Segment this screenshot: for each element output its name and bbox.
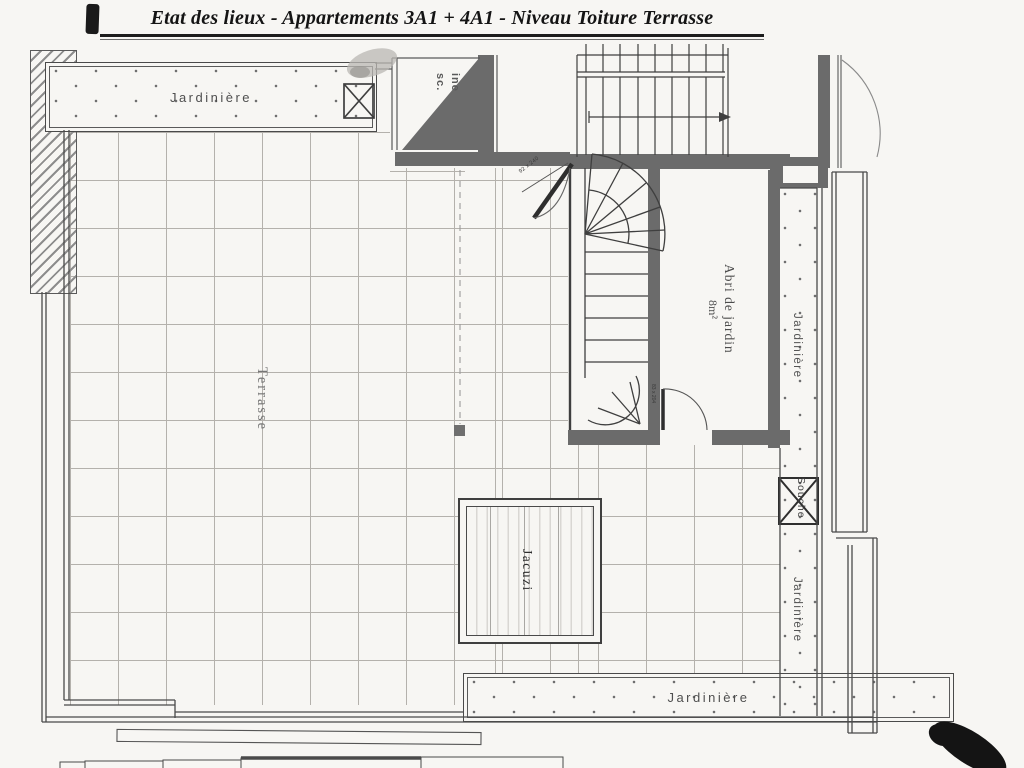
shed-door-swing-arc	[663, 389, 707, 430]
wall-shed-right	[768, 170, 780, 448]
external-stair	[577, 44, 728, 157]
scan-smudge-dark	[350, 66, 370, 78]
planter-post-box	[344, 84, 374, 118]
wall-right-top	[818, 55, 830, 168]
wall-notch	[783, 166, 818, 183]
planter-right-lower-label: Jardinière	[787, 560, 803, 660]
planter-right-upper-label: Jardinière	[787, 296, 803, 396]
external-stair-treads	[586, 77, 723, 155]
shed-label: Abri de jardin	[721, 234, 737, 384]
shaft-label-block: ine sc.	[428, 44, 462, 120]
plan-linework	[0, 0, 1024, 768]
shaft-label-line2: sc.	[432, 44, 447, 120]
landing-door-arc	[842, 60, 880, 157]
wall-top-middle	[395, 152, 570, 166]
separation-marker	[454, 425, 465, 436]
flue-label: Souche	[789, 458, 807, 538]
terrace-label: Terrasse	[250, 358, 270, 440]
stair-door	[522, 163, 572, 218]
bottom-outer-band	[117, 729, 481, 744]
bottom-partial-row	[60, 757, 563, 768]
wall-shaft-right	[478, 55, 494, 152]
top-right-landing	[838, 55, 880, 168]
stair-straight-treads	[585, 252, 648, 362]
shaft-label-line1: ine	[447, 44, 462, 120]
scan-mark-top-left	[85, 4, 99, 34]
stair-direction-arrow-line	[589, 111, 719, 123]
wall-shed-bottom-right	[712, 430, 790, 445]
stair-direction-arrowhead	[719, 112, 731, 122]
shed-door-dimension: 83 x 204	[650, 384, 656, 430]
stair-bottom-fan-arc	[588, 376, 639, 425]
ink-blob	[925, 712, 1014, 768]
floor-plan-page: Etat des lieux - Appartements 3A1 + 4A1 …	[0, 0, 1024, 768]
wall-shed-bottom-left	[568, 430, 660, 445]
wall-top-shed	[568, 154, 790, 169]
external-stair-balusters	[586, 44, 723, 72]
shed-door	[663, 389, 707, 430]
shed-area-label: 8m²	[705, 234, 721, 384]
shed-label-block: Abri de jardin 8m²	[699, 234, 737, 384]
stair-bottom-fan-treads	[598, 382, 640, 424]
